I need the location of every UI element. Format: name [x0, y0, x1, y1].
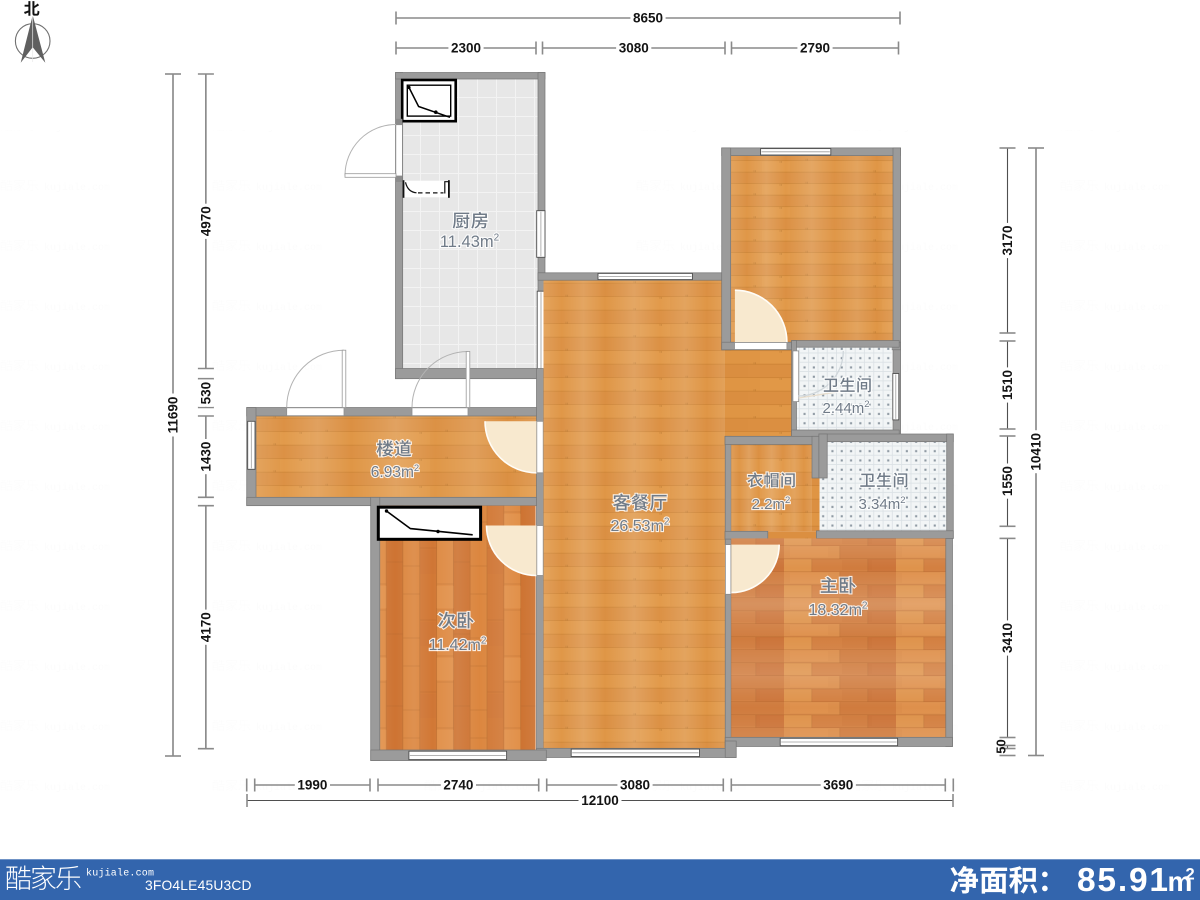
- svg-text:11.42m2: 11.42m2: [429, 636, 487, 655]
- svg-text:2300: 2300: [451, 41, 481, 56]
- svg-text:1430: 1430: [198, 442, 213, 472]
- svg-text:11690: 11690: [166, 397, 181, 434]
- svg-text:2.2m2: 2.2m2: [752, 495, 791, 513]
- svg-text:50: 50: [994, 739, 1009, 753]
- svg-text:2.44m2: 2.44m2: [823, 399, 870, 417]
- svg-text:12100: 12100: [581, 793, 619, 808]
- svg-text:8650: 8650: [633, 11, 663, 26]
- svg-text:2: 2: [1186, 866, 1195, 884]
- svg-text:3410: 3410: [1000, 623, 1015, 653]
- svg-text:10410: 10410: [1028, 433, 1043, 471]
- svg-text:3690: 3690: [823, 778, 853, 793]
- svg-text:6.93m2: 6.93m2: [371, 463, 419, 481]
- svg-text:4170: 4170: [198, 612, 213, 642]
- svg-text:11.43m2: 11.43m2: [440, 233, 500, 252]
- svg-text:26.53m2: 26.53m2: [611, 517, 670, 536]
- svg-text:3FO4LE45U3CD: 3FO4LE45U3CD: [145, 878, 252, 893]
- svg-text:2740: 2740: [443, 778, 473, 793]
- svg-text:3170: 3170: [1000, 225, 1015, 255]
- svg-text:2790: 2790: [800, 41, 830, 56]
- svg-text:1550: 1550: [1000, 466, 1015, 496]
- svg-text:530: 530: [198, 382, 213, 405]
- svg-text:85.91: 85.91: [1077, 862, 1170, 899]
- svg-text:4970: 4970: [199, 206, 214, 236]
- svg-text:1990: 1990: [297, 778, 327, 793]
- svg-text:18.32m2: 18.32m2: [809, 601, 868, 620]
- svg-text:kujiale.com: kujiale.com: [86, 868, 154, 880]
- svg-text:3080: 3080: [619, 41, 649, 56]
- svg-text:3.34m2: 3.34m2: [859, 495, 906, 513]
- svg-text:1510: 1510: [1000, 370, 1015, 400]
- svg-text:3080: 3080: [620, 778, 650, 793]
